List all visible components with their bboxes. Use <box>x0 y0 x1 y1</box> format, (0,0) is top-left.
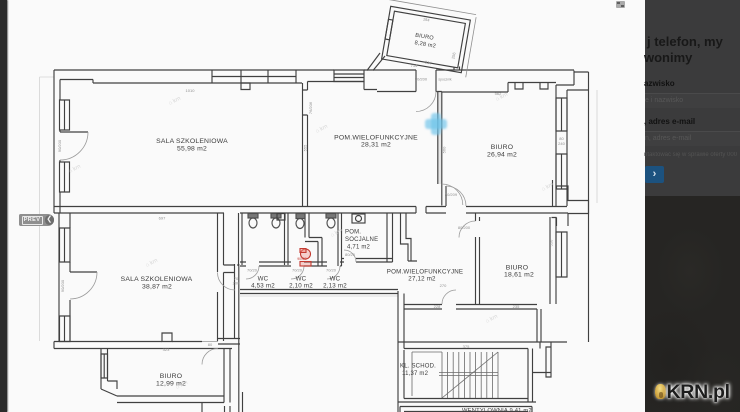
svg-text:BIURO: BIURO <box>160 373 183 380</box>
svg-text:256: 256 <box>450 51 456 59</box>
svg-text:⌂ krn: ⌂ krn <box>145 258 159 269</box>
svg-text:38,87 m2: 38,87 m2 <box>142 284 172 291</box>
svg-text:POM.: POM. <box>345 230 361 236</box>
svg-text:375: 375 <box>463 344 470 349</box>
svg-text:90x60: 90x60 <box>297 257 307 261</box>
svg-text:SALA SZKOLENIOWA: SALA SZKOLENIOWA <box>121 276 193 283</box>
svg-text:76/206: 76/206 <box>308 101 313 114</box>
svg-text:11,37 m2: 11,37 m2 <box>402 371 429 377</box>
svg-text:70/20: 70/20 <box>292 268 303 273</box>
svg-text:⌂ krn: ⌂ krn <box>315 124 329 135</box>
svg-text:⌂ krn: ⌂ krn <box>485 314 499 325</box>
svg-text:2,13 m2: 2,13 m2 <box>323 283 347 290</box>
svg-text:194: 194 <box>423 16 431 22</box>
svg-text:55,98 m2: 55,98 m2 <box>177 146 207 153</box>
svg-text:70/20: 70/20 <box>326 268 337 273</box>
svg-text:SOCJALNE: SOCJALNE <box>345 237 378 243</box>
svg-text:270: 270 <box>440 283 447 288</box>
svg-text:KL. SCHOD.: KL. SCHOD. <box>400 364 436 370</box>
svg-text:80: 80 <box>208 342 213 347</box>
svg-text:80/20: 80/20 <box>345 252 356 257</box>
svg-text:spocznik: spocznik <box>438 78 451 82</box>
svg-text:POM.WIELOFUNKCYJNE: POM.WIELOFUNKCYJNE <box>334 135 418 142</box>
svg-text:560: 560 <box>442 146 447 153</box>
svg-text:4,53 m2: 4,53 m2 <box>251 283 275 290</box>
svg-text:28,31 m2: 28,31 m2 <box>361 142 391 149</box>
svg-text:1010: 1010 <box>186 88 196 93</box>
svg-text:200: 200 <box>233 281 240 286</box>
svg-text:POM.WIELOFUNKCYJNE: POM.WIELOFUNKCYJNE <box>387 269 463 276</box>
svg-text:WC: WC <box>296 276 307 283</box>
svg-text:235: 235 <box>513 304 520 309</box>
svg-text:2,10 m2: 2,10 m2 <box>289 283 313 290</box>
svg-text:323: 323 <box>163 347 170 352</box>
svg-text:4,71 m2: 4,71 m2 <box>347 245 371 251</box>
svg-text:BIURO: BIURO <box>491 144 514 151</box>
svg-text:90/200: 90/200 <box>57 139 62 152</box>
svg-text:18,61 m2: 18,61 m2 <box>504 272 534 279</box>
svg-text:80/200: 80/200 <box>415 77 428 82</box>
svg-text:26,94 m2: 26,94 m2 <box>487 152 517 159</box>
svg-text:697: 697 <box>159 216 166 221</box>
svg-text:556: 556 <box>549 239 554 246</box>
svg-text:714: 714 <box>411 63 418 68</box>
svg-text:⌂ krn: ⌂ krn <box>168 96 182 107</box>
svg-text:240: 240 <box>558 141 565 146</box>
svg-text:90/200: 90/200 <box>60 279 65 292</box>
svg-text:555: 555 <box>303 144 308 151</box>
svg-text:BIURO: BIURO <box>506 265 529 272</box>
svg-text:70/20: 70/20 <box>247 268 258 273</box>
svg-text:27,12 m2: 27,12 m2 <box>408 276 436 283</box>
svg-text:WENTYLOWNIA 9,41 m2: WENTYLOWNIA 9,41 m2 <box>462 408 532 412</box>
svg-text:314: 314 <box>425 59 433 65</box>
svg-text:WC: WC <box>258 276 269 283</box>
svg-text:80/209: 80/209 <box>445 192 458 197</box>
svg-text:WC: WC <box>330 276 341 283</box>
svg-text:SALA SZKOLENIOWA: SALA SZKOLENIOWA <box>156 138 228 145</box>
svg-text:228: 228 <box>434 304 441 309</box>
svg-text:80/200: 80/200 <box>458 225 471 230</box>
